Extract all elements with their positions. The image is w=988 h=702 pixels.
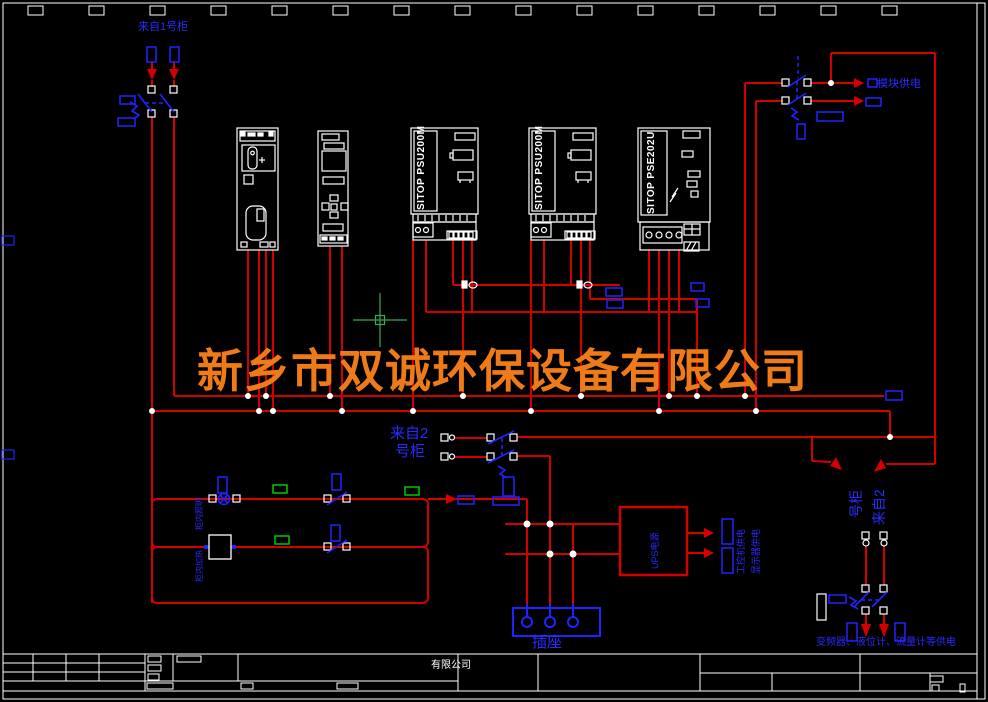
trip-unit-icon (498, 466, 507, 478)
company-watermark: 新乡市双诚环保设备有限公司 (197, 347, 808, 395)
arrow-right-icon (704, 548, 714, 558)
from-cabinet2-mid-label-1: 来自2 (390, 426, 428, 442)
zone-markers-left (2, 236, 14, 459)
socket-label: 插座 (532, 635, 562, 651)
psu1-model-label: SITOP PSU200M (417, 126, 428, 211)
arrow-down-icon (861, 624, 871, 637)
title-block-cells (147, 656, 965, 692)
ups-out-label-2: 显示器供电 (752, 529, 761, 574)
arrow-diag-icon (830, 457, 842, 470)
arrow-right-icon (854, 78, 864, 88)
breaker-top-left (130, 86, 177, 119)
wire-tags-blue (118, 47, 905, 641)
trip-unit-icon (849, 597, 858, 609)
cabinet-lighting-label: 柜内照明 (196, 498, 204, 530)
from-cabinet1-label: 来自1号柜 (138, 22, 188, 34)
title-block (3, 654, 977, 692)
arrow-right-icon (854, 96, 864, 106)
psu2-model-label: SITOP PSU200M (535, 126, 546, 211)
ups-out-label-1: 工控机供电 (737, 529, 746, 574)
from-cabinet2-right-label-2: 号柜 (849, 490, 864, 518)
heater-icon (204, 535, 236, 559)
loop-switch-icon (327, 492, 347, 553)
device-expansion-module (318, 131, 348, 246)
arrow-diag-icon (874, 459, 886, 472)
arrow-down-icon (879, 624, 889, 637)
right-loads-label: 变频器、液位计、流量计等供电 (816, 638, 956, 649)
arrow-down-icon (169, 69, 179, 80)
breaker-top-right (782, 56, 811, 120)
from-cabinet2-mid-label-2: 号柜 (395, 444, 425, 460)
pse-model-label: SITOP PSE202U (647, 131, 658, 214)
cad-canvas[interactable]: 来自1号柜 来自2 号柜 模块供电 插座 变频器、液位计、流量计等供电 有限公司… (0, 0, 988, 702)
cabinet-heater-label: 柜内加热 (196, 550, 204, 582)
device-plc (237, 128, 278, 250)
from-cabinet2-right-label-1: 来自2 (872, 489, 887, 525)
crosshair-cursor (353, 293, 407, 347)
arrow-down-icon (147, 69, 157, 80)
arrow-right-icon (704, 528, 714, 538)
socket-symbol (513, 604, 600, 636)
module-power-label: 模块供电 (877, 79, 921, 91)
breaker-bottom-right (817, 532, 887, 620)
junction-dots (149, 80, 893, 558)
zone-ticks (28, 6, 897, 15)
titleblock-company-label: 有限公司 (431, 661, 471, 672)
ups-box-label: UPS电源 (651, 532, 660, 569)
arrow-right-icon (446, 494, 457, 504)
cabinet-loops (152, 499, 428, 603)
trip-unit-icon (791, 108, 799, 120)
wire-tags-green (273, 485, 419, 544)
